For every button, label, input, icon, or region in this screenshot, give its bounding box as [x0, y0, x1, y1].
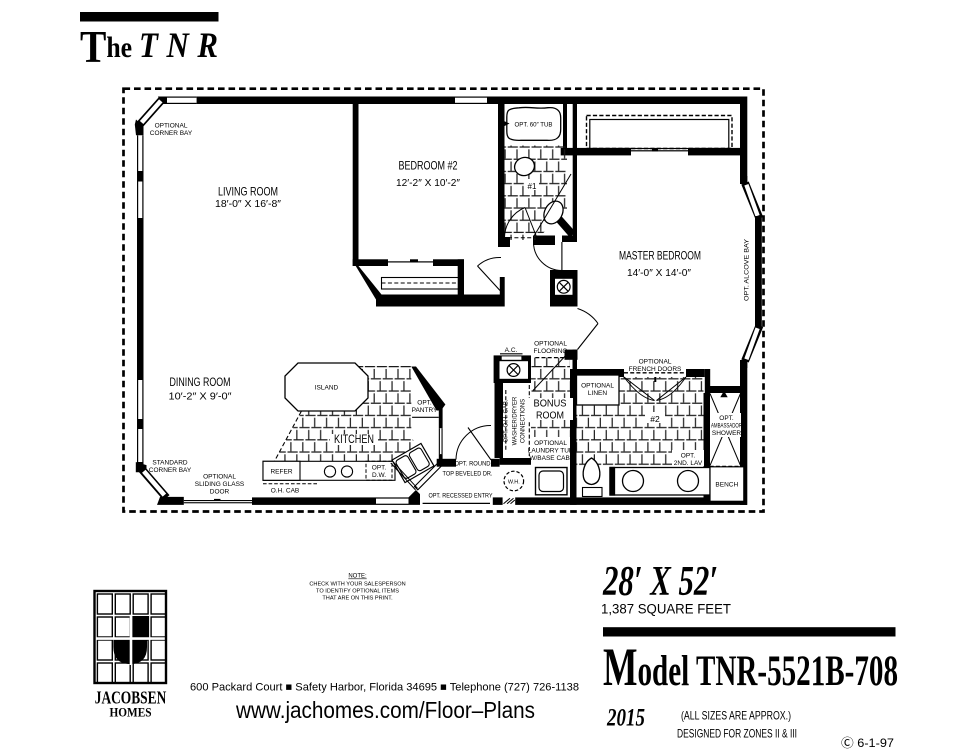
svg-text:DOOR: DOOR [210, 489, 230, 496]
svg-text:600 Packard Court ■ Safety Har: 600 Packard Court ■ Safety Harbor, Flori… [190, 682, 579, 694]
svg-text:STANDARD: STANDARD [152, 460, 188, 467]
svg-text:www.jachomes.com/Floor–Plans: www.jachomes.com/Floor–Plans [235, 697, 535, 723]
svg-text:OPT.: OPT. [372, 465, 387, 472]
svg-text:OPT. RECESSED ENTRY: OPT. RECESSED ENTRY [429, 493, 493, 500]
svg-text:TOP BEVELED DR.: TOP BEVELED DR. [443, 471, 493, 478]
svg-text:TheTNR: TheTNR [80, 21, 218, 72]
svg-text:D.W.: D.W. [372, 472, 386, 479]
svg-text:OPTIONAL: OPTIONAL [534, 440, 567, 447]
svg-text:LINEN: LINEN [588, 390, 607, 397]
svg-text:OPTIONAL: OPTIONAL [581, 383, 614, 390]
svg-text:PANTRY: PANTRY [412, 407, 438, 414]
svg-text:LIVING ROOM: LIVING ROOM [218, 185, 278, 199]
svg-text:HOMES: HOMES [110, 705, 152, 720]
svg-text:FLOORING: FLOORING [534, 348, 568, 355]
svg-text:TO IDENTIFY OPTIONAL ITEMS: TO IDENTIFY OPTIONAL ITEMS [316, 589, 399, 595]
svg-text:FRENCH DOORS: FRENCH DOORS [629, 366, 682, 373]
svg-text:OPT.: OPT. [719, 415, 734, 422]
svg-text:OPT.: OPT. [417, 400, 432, 407]
svg-text:BEDROOM #2: BEDROOM #2 [399, 159, 458, 173]
svg-text:OPTIONAL: OPTIONAL [203, 474, 236, 481]
svg-text:14′-0″ X 14′-0″: 14′-0″ X 14′-0″ [627, 268, 691, 279]
svg-text:KITCHEN: KITCHEN [334, 432, 374, 446]
svg-text:SHOWER: SHOWER [712, 430, 742, 437]
svg-text:ROOM: ROOM [536, 410, 564, 422]
svg-text:LAUNDRY TUB: LAUNDRY TUB [528, 448, 574, 455]
svg-text:#2: #2 [650, 414, 660, 424]
svg-text:BENCH: BENCH [715, 482, 738, 489]
svg-text:NOTE:: NOTE: [348, 574, 367, 580]
svg-text:Ⓒ 6-1-97: Ⓒ 6-1-97 [841, 736, 894, 750]
svg-text:12′-2″ X 10′-2″: 12′-2″ X 10′-2″ [396, 178, 460, 189]
svg-text:BONUS: BONUS [534, 398, 567, 410]
svg-text:18′-0″ X 16′-8″: 18′-0″ X 16′-8″ [215, 199, 281, 210]
svg-text:CONNECTIONS: CONNECTIONS [521, 399, 527, 443]
svg-text:2ND. LAV: 2ND. LAV [674, 460, 703, 467]
svg-text:OPT. 60″ TUB: OPT. 60″ TUB [515, 122, 553, 129]
svg-text:AMBASSADOR: AMBASSADOR [711, 423, 742, 430]
svg-text:O.H. CAB: O.H. CAB [271, 488, 300, 495]
svg-text:A.C.: A.C. [505, 347, 518, 354]
svg-text:MASTER BEDROOM: MASTER BEDROOM [619, 249, 701, 263]
svg-text:DINING ROOM: DINING ROOM [170, 375, 231, 389]
svg-text:OPT. O.H. CAB.: OPT. O.H. CAB. [504, 399, 510, 442]
svg-text:SLIDING GLASS: SLIDING GLASS [195, 481, 245, 488]
svg-text:REFER: REFER [270, 469, 292, 476]
svg-text:OPTIONAL: OPTIONAL [534, 341, 567, 348]
svg-text:THAT ARE ON THIS PRINT.: THAT ARE ON THIS PRINT. [322, 596, 393, 602]
svg-text:OPT.: OPT. [681, 453, 696, 460]
svg-text:OPTIONAL: OPTIONAL [639, 359, 672, 366]
svg-text:10′-2″ X 9′-0″: 10′-2″ X 9′-0″ [169, 392, 232, 403]
svg-text:CORNER BAY: CORNER BAY [149, 467, 192, 474]
svg-text:W.H.: W.H. [508, 480, 520, 486]
svg-text:1,387 SQUARE FEET: 1,387 SQUARE FEET [601, 602, 731, 617]
svg-text:OPT. ROUND: OPT. ROUND [455, 461, 491, 468]
svg-text:#1: #1 [528, 182, 537, 191]
svg-text:WASHER/DRYER: WASHER/DRYER [513, 396, 519, 445]
svg-text:28′ X 52′: 28′ X 52′ [602, 559, 718, 605]
svg-text:DESIGNED FOR ZONES II & III: DESIGNED FOR ZONES II & III [677, 727, 797, 741]
svg-text:W/BASE CAB.: W/BASE CAB. [529, 455, 571, 462]
svg-text:CORNER BAY: CORNER BAY [150, 130, 193, 137]
svg-text:ISLAND: ISLAND [315, 385, 339, 392]
svg-text:(ALL SIZES ARE APPROX.): (ALL SIZES ARE APPROX.) [681, 709, 791, 723]
svg-text:CHECK WITH YOUR SALESPERSON: CHECK WITH YOUR SALESPERSON [309, 582, 405, 588]
svg-text:OPT. ALCOVE BAY: OPT. ALCOVE BAY [745, 239, 751, 301]
svg-text:2015: 2015 [606, 705, 645, 732]
svg-text:OPTIONAL: OPTIONAL [155, 123, 188, 130]
